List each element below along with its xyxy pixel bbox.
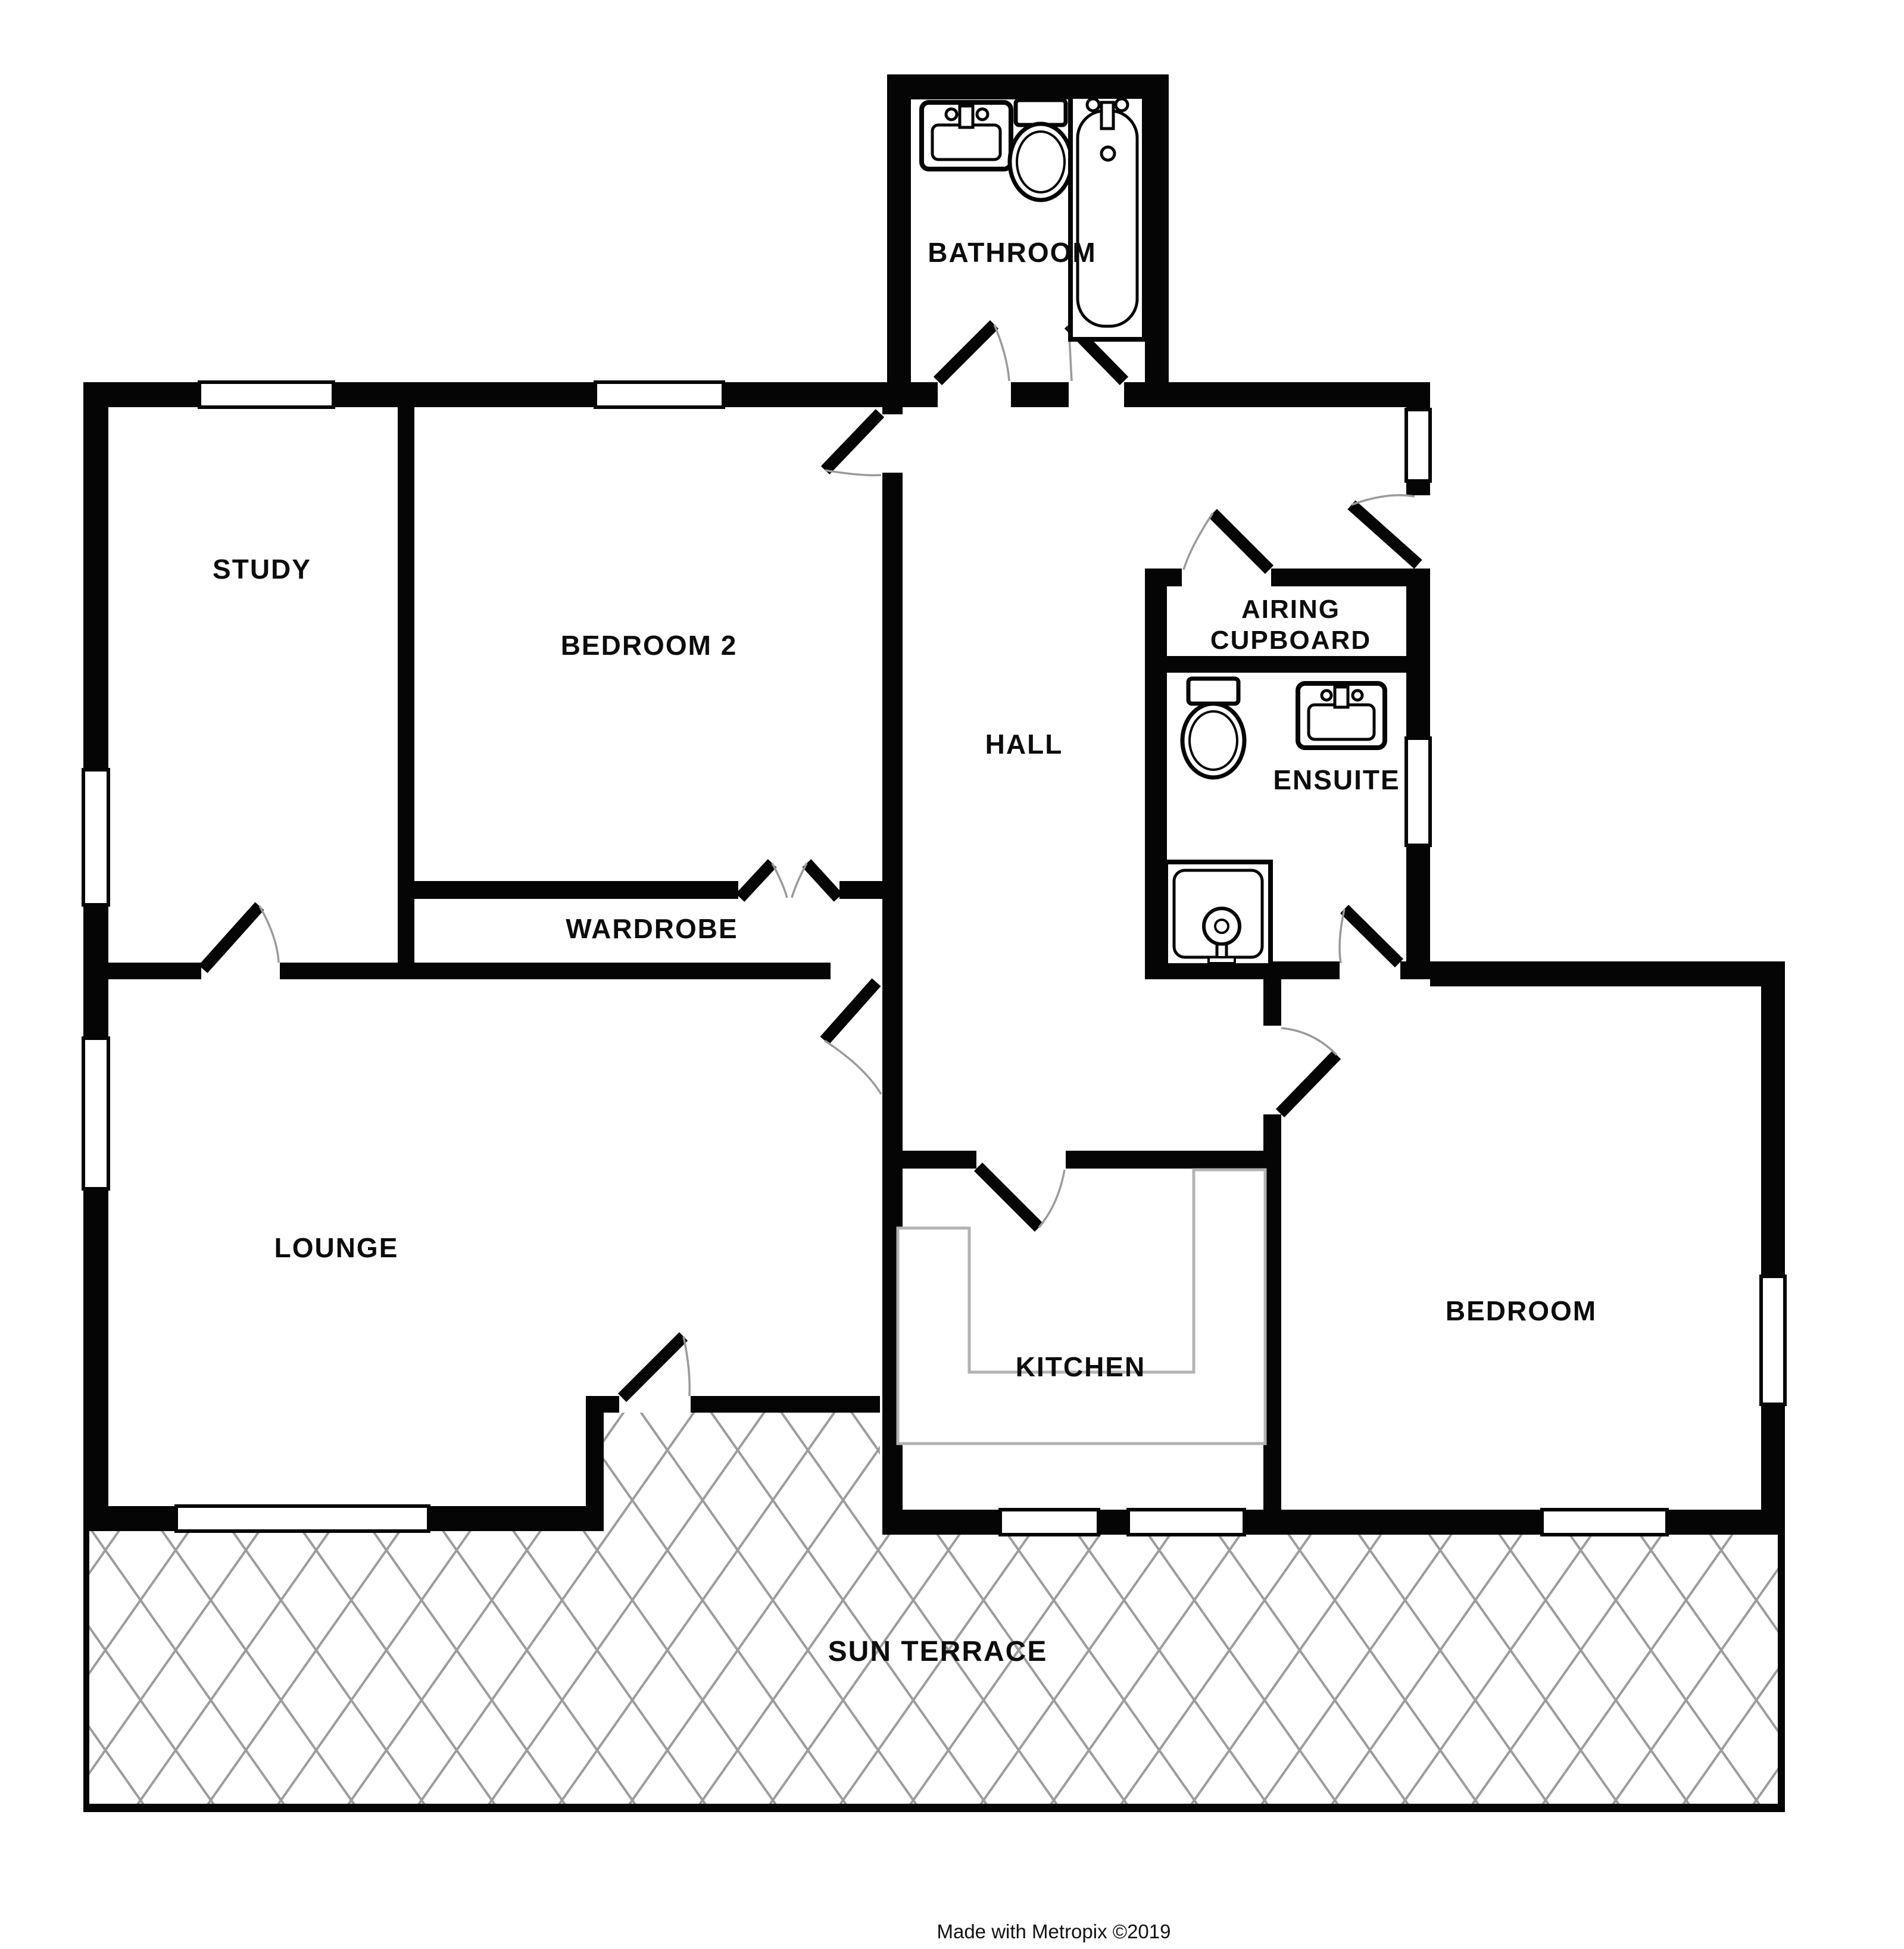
wall-bedroom-west-a xyxy=(1263,979,1281,1026)
wall-step-horizontal-b xyxy=(691,1396,880,1413)
sink-icon xyxy=(1298,683,1385,748)
wall-bathroom-pier-right xyxy=(1124,382,1145,407)
toilet-icon xyxy=(1010,100,1072,200)
terrace-border-bottom xyxy=(83,1804,1785,1812)
wall-hall-bottom-a xyxy=(903,1151,976,1169)
wall-bathroom-pier-left xyxy=(911,382,938,407)
door-arc xyxy=(792,863,807,898)
wall-cupboard-top-b xyxy=(1271,569,1430,586)
wall-wardrobe-top-a xyxy=(414,881,738,899)
label-airing-line2: CUPBOARD xyxy=(1210,626,1371,655)
wall-spine-stub xyxy=(882,407,903,414)
window-icon xyxy=(1000,1510,1098,1535)
door-arc xyxy=(1351,495,1415,505)
window-icon xyxy=(83,770,108,905)
window-icon xyxy=(595,382,723,407)
door-leaf-icon xyxy=(203,906,260,969)
window-icon xyxy=(1406,410,1430,481)
label-ensuite: ENSUITE xyxy=(1273,764,1400,795)
window-icon xyxy=(1128,1510,1244,1535)
wall-hall-bottom-b xyxy=(1066,1151,1281,1169)
wall-bedroom-right xyxy=(1761,961,1785,1535)
label-airing-line1: AIRING xyxy=(1241,595,1340,624)
window-icon xyxy=(1542,1510,1667,1535)
wall-study-bedroom2 xyxy=(398,407,414,963)
door-arc xyxy=(683,1336,689,1396)
door-leaf-icon xyxy=(825,982,876,1041)
wall-ensuite-bottom-b xyxy=(1400,961,1430,979)
label-bedroom: BEDROOM xyxy=(1446,1295,1597,1326)
wall-top-right xyxy=(1145,382,1430,407)
toilet-icon xyxy=(1182,679,1244,777)
label-study: STUDY xyxy=(213,554,311,585)
credit-text: Made with Metropix ©2019 xyxy=(937,1920,1171,1942)
floorplan-page: BATHROOM STUDY BEDROOM 2 HALL AIRING CUP… xyxy=(0,0,1904,1949)
door-leaf-icon xyxy=(807,863,838,898)
wall-cupboard-top-a xyxy=(1145,569,1182,586)
shower-icon xyxy=(1166,862,1271,966)
wall-wardrobe-top-b xyxy=(839,881,882,899)
wall-wardrobe-bottom xyxy=(280,963,831,979)
door-arc xyxy=(1039,1170,1065,1228)
label-lounge: LOUNGE xyxy=(274,1232,399,1263)
floorplan-drawing: BATHROOM STUDY BEDROOM 2 HALL AIRING CUP… xyxy=(0,0,1904,1949)
window-icon xyxy=(1406,738,1430,845)
door-leaf-icon xyxy=(740,863,772,898)
label-sun-terrace: SUN TERRACE xyxy=(828,1636,1048,1667)
wall-step-horizontal-a xyxy=(604,1396,619,1413)
door-leaf-icon xyxy=(1213,513,1269,570)
kitchen-counter-icon xyxy=(898,1170,1265,1444)
door-leaf-icon xyxy=(1344,909,1399,963)
wall-study-bottom-a xyxy=(83,963,201,979)
window-icon xyxy=(199,382,333,407)
door-leaf-icon xyxy=(622,1336,683,1398)
window-icon xyxy=(1761,1276,1785,1404)
door-arc xyxy=(772,863,787,898)
wall-bedroom-top xyxy=(1430,961,1785,986)
terrace-border-left xyxy=(83,1531,89,1811)
wall-hall-east-a xyxy=(1406,382,1430,410)
window-icon xyxy=(83,1038,108,1189)
window-icon xyxy=(176,1506,429,1531)
wall-bathroom-pier-mid xyxy=(1011,382,1069,407)
door-leaf-icon xyxy=(1280,1055,1337,1113)
terrace-border-right xyxy=(1778,1535,1785,1812)
wall-cupboard-ensuite-divider xyxy=(1145,656,1430,673)
label-kitchen: KITCHEN xyxy=(1016,1351,1145,1382)
door-arc xyxy=(1184,513,1213,570)
bath-icon xyxy=(1070,96,1144,339)
door-arc xyxy=(994,324,1009,381)
door-arc xyxy=(1281,1028,1337,1055)
door-leaf-icon xyxy=(978,1167,1039,1228)
terrace-hatch-icon xyxy=(89,1413,1778,1804)
label-hall: HALL xyxy=(985,729,1063,760)
door-arc xyxy=(260,906,279,963)
sink-icon xyxy=(922,102,1011,169)
label-bathroom: BATHROOM xyxy=(928,237,1096,268)
label-wardrobe: WARDROBE xyxy=(566,913,738,944)
wall-bathroom-right xyxy=(1145,74,1169,407)
door-leaf-icon xyxy=(825,413,880,470)
label-bedroom2: BEDROOM 2 xyxy=(561,630,738,661)
door-arc xyxy=(1340,909,1344,963)
door-leaf-icon xyxy=(1351,505,1418,564)
door-arc xyxy=(825,1041,881,1094)
wall-bathroom-left xyxy=(887,74,911,407)
door-leaf-icon xyxy=(938,324,994,381)
wall-hall-east-stub xyxy=(1406,481,1430,495)
wall-step-vertical xyxy=(586,1396,604,1531)
door-arc xyxy=(825,470,881,475)
wall-left xyxy=(83,382,108,1531)
